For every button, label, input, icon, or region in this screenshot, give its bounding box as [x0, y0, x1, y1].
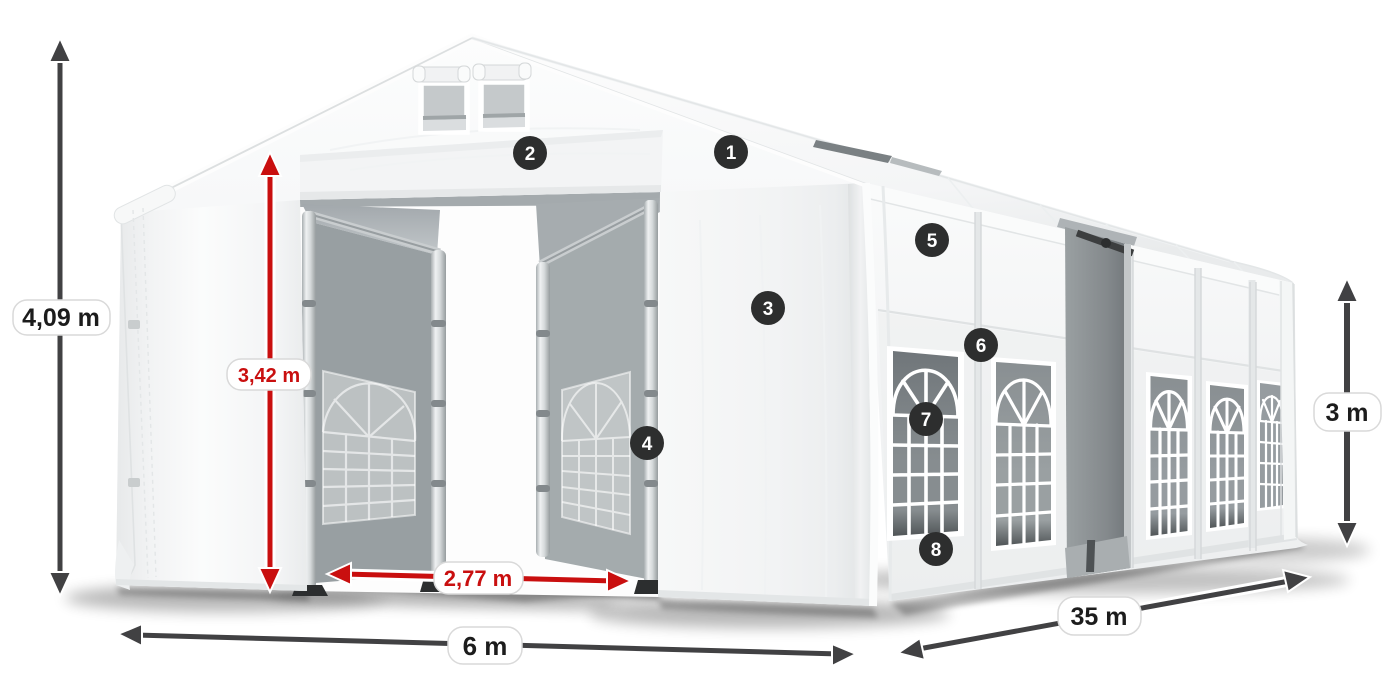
svg-text:8: 8 [931, 540, 942, 561]
svg-text:2: 2 [525, 144, 536, 165]
svg-text:35 m: 35 m [1071, 603, 1128, 631]
svg-text:1: 1 [726, 143, 737, 164]
svg-text:6: 6 [976, 336, 987, 357]
svg-text:6 m: 6 m [463, 631, 508, 661]
svg-text:7: 7 [921, 410, 932, 431]
svg-text:3 m: 3 m [1325, 399, 1368, 427]
svg-text:3: 3 [763, 299, 774, 320]
svg-text:3,42 m: 3,42 m [238, 365, 300, 387]
svg-text:4: 4 [642, 434, 653, 455]
svg-text:5: 5 [927, 231, 938, 252]
svg-text:4,09 m: 4,09 m [22, 304, 100, 332]
svg-text:2,77 m: 2,77 m [444, 566, 513, 591]
